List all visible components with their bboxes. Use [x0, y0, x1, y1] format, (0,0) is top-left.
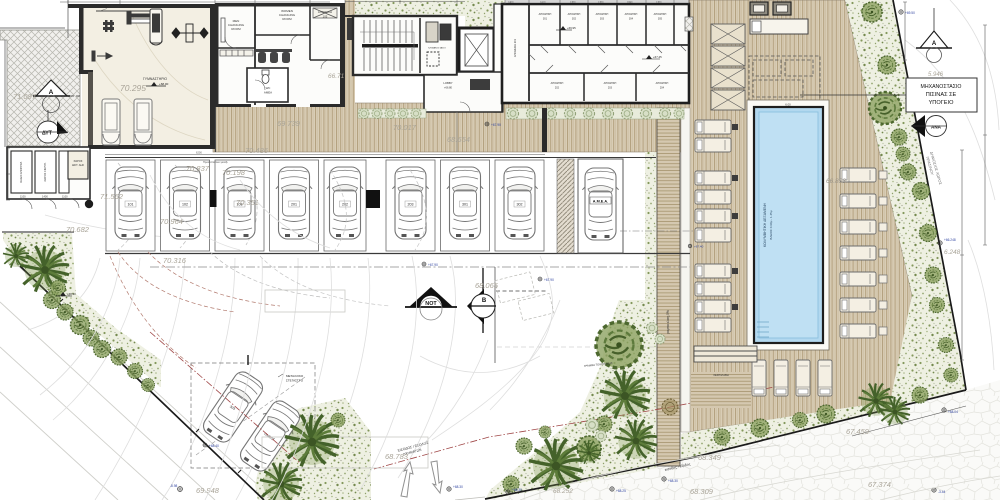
- svg-text:+68.00: +68.00: [159, 82, 169, 86]
- svg-text:ΑΠΟΘΗΚΗ: ΑΠΟΘΗΚΗ: [656, 82, 669, 85]
- svg-text:-3.44: -3.44: [938, 490, 945, 494]
- svg-text:ΚΟΛΥΜΒΗΤΙΚΗ ΔΕΞΑΜΕΝΗ: ΚΟΛΥΜΒΗΤΙΚΗ ΔΕΞΑΜΕΝΗ: [763, 202, 767, 247]
- svg-text:5.946: 5.946: [928, 72, 944, 78]
- svg-text:203: 203: [608, 87, 613, 90]
- svg-text:+68.30: +68.30: [668, 479, 678, 483]
- svg-text:ΜΗΧΑΝΟΣΤΑΣΙΟ: ΜΗΧΑΝΟΣΤΑΣΙΟ: [921, 84, 962, 90]
- svg-text:203: 203: [408, 203, 414, 207]
- svg-text:70.682: 70.682: [66, 225, 90, 234]
- svg-text:71.562: 71.562: [100, 192, 124, 201]
- svg-text:+68.30: +68.30: [453, 485, 463, 489]
- svg-text:201: 201: [291, 203, 297, 207]
- svg-text:+67.45: +67.45: [653, 55, 662, 59]
- svg-text:+66.95: +66.95: [567, 26, 576, 30]
- svg-text:301: 301: [543, 18, 548, 21]
- svg-text:ΚΑΔΟΙ ΑΠΟΡΡΙΜ.: ΚΑΔΟΙ ΑΠΟΡΡΙΜ.: [19, 161, 23, 182]
- svg-text:1100: 1100: [20, 195, 26, 199]
- svg-text:1400: 1400: [42, 195, 48, 199]
- svg-text:ΥΠΟΓΕΙΟ: ΥΠΟΓΕΙΟ: [929, 100, 954, 106]
- svg-text:67.374: 67.374: [868, 480, 891, 489]
- svg-text:ΑΠΟΘΗΚΗ: ΑΠΟΘΗΚΗ: [596, 13, 609, 16]
- svg-text:+68.40: +68.40: [209, 444, 219, 448]
- svg-text:Α.Μ.Ε.Α.: Α.Μ.Ε.Α.: [593, 199, 608, 203]
- svg-text:1360: 1360: [598, 1, 604, 4]
- svg-text:70.316: 70.316: [163, 256, 187, 265]
- svg-text:ΣΤΕΓΑΣΤΡΟ: ΣΤΕΓΑΣΤΡΟ: [286, 379, 304, 383]
- svg-text:+68.30: +68.30: [512, 488, 522, 492]
- svg-text:+66.248: +66.248: [944, 238, 956, 242]
- svg-text:68.783: 68.783: [385, 452, 409, 461]
- svg-text:6200: 6200: [196, 151, 202, 155]
- svg-text:1100: 1100: [62, 195, 68, 199]
- svg-text:69.739: 69.739: [277, 119, 301, 128]
- svg-text:1410: 1410: [540, 1, 546, 4]
- svg-text:ΑΠΟΘΗΚΗ: ΑΠΟΘΗΚΗ: [654, 13, 667, 16]
- svg-text:66.71: 66.71: [328, 73, 345, 80]
- svg-text:71.097: 71.097: [13, 92, 37, 101]
- svg-text:202: 202: [555, 87, 560, 90]
- svg-text:+69.50: +69.50: [905, 11, 915, 15]
- svg-text:ΓΥΜΝΑΣΤΗΡΙΟ: ΓΥΜΝΑΣΤΗΡΙΟ: [143, 77, 167, 81]
- svg-text:-8.98: -8.98: [170, 484, 177, 488]
- svg-text:ROOM: ROOM: [282, 17, 292, 21]
- svg-text:1400: 1400: [508, 1, 514, 4]
- svg-text:+67.40: +67.40: [694, 245, 704, 249]
- svg-text:6.00: 6.00: [785, 103, 791, 107]
- svg-text:1840: 1840: [627, 1, 633, 4]
- svg-text:70.295: 70.295: [120, 83, 146, 93]
- svg-text:B: B: [482, 298, 487, 304]
- svg-text:MIRROR: MIRROR: [107, 5, 121, 9]
- svg-text:ΒΑΘΟΣ 0.90μ - 1.45μ: ΒΑΘΟΣ 0.90μ - 1.45μ: [769, 210, 773, 239]
- svg-text:1360: 1360: [570, 1, 576, 4]
- svg-text:LOBBY: LOBBY: [443, 81, 452, 85]
- svg-text:70.017: 70.017: [393, 123, 417, 132]
- svg-text:70.964: 70.964: [160, 217, 183, 226]
- svg-text:Α: Α: [49, 89, 54, 96]
- svg-text:6.248: 6.248: [944, 249, 961, 256]
- svg-text:70.351: 70.351: [236, 198, 259, 207]
- svg-text:68.309: 68.309: [690, 487, 714, 496]
- svg-text:1360: 1360: [656, 1, 662, 4]
- svg-text:WC: WC: [266, 86, 271, 90]
- svg-text:68.654: 68.654: [447, 135, 470, 144]
- svg-text:+68.90: +68.90: [67, 292, 76, 296]
- svg-text:+68.04: +68.04: [948, 410, 958, 414]
- svg-text:301: 301: [462, 203, 468, 207]
- svg-text:ΑΜΕΑ: ΑΜΕΑ: [264, 91, 272, 95]
- svg-text:305: 305: [658, 18, 663, 21]
- svg-text:102: 102: [182, 203, 188, 207]
- svg-text:101: 101: [128, 203, 134, 207]
- svg-text:304: 304: [629, 18, 634, 21]
- svg-text:302: 302: [517, 203, 523, 207]
- svg-text:ΑΠΟΘΗΚΗ 201: ΑΠΟΘΗΚΗ 201: [513, 38, 517, 57]
- svg-text:ΑΝΑ: ΑΝΑ: [931, 125, 942, 130]
- svg-text:70.486: 70.486: [245, 146, 269, 155]
- svg-text:ΑΠΟΘΗΚΗ: ΑΠΟΘΗΚΗ: [604, 82, 617, 85]
- svg-text:ΑΠΟΘΗΚΗ: ΑΠΟΘΗΚΗ: [318, 10, 332, 14]
- svg-text:ΧΩΡΟΣ ΣΚΟΥΠ.: ΧΩΡΟΣ ΣΚΟΥΠ.: [43, 162, 47, 182]
- svg-text:NOT: NOT: [425, 301, 437, 307]
- svg-text:ραμπα κλιση 5%: ραμπα κλιση 5%: [666, 310, 670, 334]
- svg-text:ΔΥΤ: ΔΥΤ: [42, 131, 53, 137]
- svg-text:302: 302: [572, 18, 577, 21]
- svg-text:ROOM: ROOM: [231, 27, 241, 31]
- svg-text:ΑΠΟΘΗΚΗ: ΑΠΟΘΗΚΗ: [551, 82, 564, 85]
- svg-text:+67.90: +67.90: [428, 263, 438, 267]
- svg-text:ΔΙΚΤ. ΑΗΚ: ΔΙΚΤ. ΑΗΚ: [72, 163, 84, 167]
- svg-text:ΜΕΤΑΛΛΙΚΟ: ΜΕΤΑΛΛΙΚΟ: [286, 374, 304, 378]
- svg-text:ΚΛΙΜΑΚΟΣΤΑΣΙΟ: ΚΛΙΜΑΚΟΣΤΑΣΙΟ: [428, 47, 446, 50]
- svg-text:ΧΩΡΟΣ: ΧΩΡΟΣ: [73, 159, 82, 163]
- svg-text:+67.90: +67.90: [544, 278, 554, 282]
- svg-text:70.198: 70.198: [222, 168, 246, 177]
- svg-text:68.252: 68.252: [553, 488, 573, 495]
- svg-text:Α: Α: [932, 41, 937, 47]
- svg-text:+68.25: +68.25: [616, 489, 626, 493]
- svg-text:+67.90: +67.90: [491, 123, 501, 127]
- svg-text:+66.80: +66.80: [444, 86, 453, 90]
- svg-text:ΑΠΟΘΗΚΗ: ΑΠΟΘΗΚΗ: [568, 13, 581, 16]
- svg-text:202: 202: [342, 203, 348, 207]
- svg-text:68.065: 68.065: [475, 281, 499, 290]
- svg-text:303: 303: [600, 18, 605, 21]
- svg-text:67.459: 67.459: [846, 427, 870, 436]
- svg-text:70.837: 70.837: [186, 164, 210, 173]
- svg-text:105: 105: [323, 15, 328, 19]
- svg-text:ΑΠΟΘΗΚΗ: ΑΠΟΘΗΚΗ: [625, 13, 638, 16]
- svg-text:ΧΕΙΡΟΛΑΒΗ: ΧΕΙΡΟΛΑΒΗ: [713, 373, 729, 377]
- svg-text:ΠΙΣΙΝΑΣ ΣΕ: ΠΙΣΙΝΑΣ ΣΕ: [926, 92, 957, 98]
- svg-text:204: 204: [660, 87, 665, 90]
- svg-text:ΑΠΟΘΗΚΗ: ΑΠΟΘΗΚΗ: [539, 13, 552, 16]
- svg-text:66.833: 66.833: [826, 178, 846, 185]
